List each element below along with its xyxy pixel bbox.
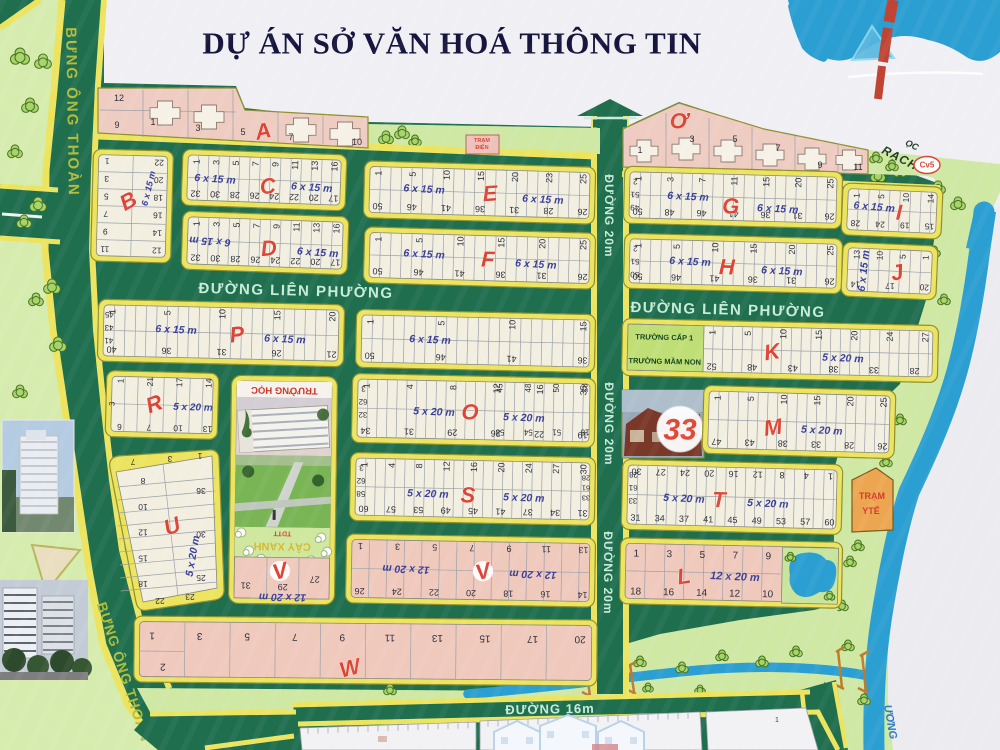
svg-text:4: 4 <box>804 471 809 481</box>
svg-text:20: 20 <box>327 311 337 321</box>
svg-text:50: 50 <box>365 350 375 360</box>
svg-text:11: 11 <box>291 222 301 232</box>
svg-text:62: 62 <box>358 397 368 406</box>
svg-text:26: 26 <box>249 191 259 201</box>
svg-text:41: 41 <box>441 203 451 213</box>
svg-text:3: 3 <box>107 401 116 406</box>
svg-text:G: G <box>722 193 740 218</box>
svg-text:1: 1 <box>637 145 642 155</box>
svg-text:49: 49 <box>752 515 762 525</box>
svg-text:30: 30 <box>210 253 220 263</box>
svg-text:31: 31 <box>509 205 519 215</box>
svg-text:5 x 20 m: 5 x 20 m <box>503 411 545 425</box>
svg-text:20: 20 <box>574 633 586 644</box>
svg-text:7: 7 <box>469 543 474 553</box>
svg-text:26: 26 <box>824 211 834 221</box>
svg-text:18: 18 <box>138 579 148 589</box>
svg-text:45: 45 <box>727 515 737 525</box>
svg-text:25: 25 <box>825 245 835 255</box>
svg-text:10: 10 <box>138 502 148 512</box>
svg-text:12 x 20 m: 12 x 20 m <box>710 570 760 584</box>
svg-text:61: 61 <box>628 483 638 492</box>
svg-text:49: 49 <box>630 203 640 212</box>
svg-text:ĐIỆN: ĐIỆN <box>475 143 488 151</box>
svg-text:14: 14 <box>696 588 708 599</box>
svg-text:1: 1 <box>707 330 717 335</box>
svg-text:15: 15 <box>479 632 491 643</box>
svg-text:34: 34 <box>360 426 370 436</box>
svg-text:8: 8 <box>414 463 424 468</box>
svg-text:6 x 15 m: 6 x 15 m <box>403 182 445 196</box>
svg-text:7: 7 <box>292 631 298 642</box>
svg-text:50: 50 <box>372 266 382 276</box>
svg-text:32: 32 <box>358 410 368 419</box>
svg-text:58: 58 <box>495 428 504 437</box>
svg-text:1: 1 <box>713 395 723 400</box>
svg-text:5: 5 <box>244 630 250 641</box>
svg-text:5: 5 <box>672 244 682 249</box>
svg-text:25: 25 <box>578 240 588 250</box>
svg-text:6 x 15 m: 6 x 15 m <box>403 247 445 261</box>
svg-text:10: 10 <box>442 170 452 180</box>
svg-text:51: 51 <box>630 190 640 199</box>
svg-text:45: 45 <box>104 310 114 319</box>
svg-text:26: 26 <box>250 255 260 265</box>
svg-text:41: 41 <box>506 354 516 364</box>
svg-text:2: 2 <box>632 244 637 253</box>
svg-text:33: 33 <box>663 414 697 447</box>
svg-text:5: 5 <box>162 310 172 315</box>
svg-text:13: 13 <box>202 424 212 434</box>
svg-text:62: 62 <box>356 476 366 485</box>
svg-text:10: 10 <box>173 423 183 433</box>
svg-text:5: 5 <box>699 550 705 561</box>
svg-text:28: 28 <box>543 206 553 216</box>
svg-text:9: 9 <box>339 631 345 642</box>
svg-text:45: 45 <box>496 383 505 392</box>
svg-text:21: 21 <box>145 377 155 387</box>
svg-text:57: 57 <box>800 517 810 527</box>
svg-text:5: 5 <box>231 160 241 165</box>
svg-text:46: 46 <box>407 202 417 212</box>
svg-text:10: 10 <box>778 329 788 339</box>
svg-text:32: 32 <box>190 252 200 262</box>
svg-text:50: 50 <box>372 201 382 211</box>
svg-text:31: 31 <box>241 580 251 590</box>
svg-text:3: 3 <box>104 174 109 184</box>
svg-text:3: 3 <box>689 134 694 144</box>
svg-text:26: 26 <box>577 272 587 282</box>
svg-text:37: 37 <box>679 514 689 524</box>
svg-text:YTẾ: YTẾ <box>862 506 880 516</box>
svg-text:50: 50 <box>630 270 640 279</box>
svg-text:DỰ ÁN SỞ VĂN HOÁ THÔNG TIN: DỰ ÁN SỞ VĂN HOÁ THÔNG TIN <box>202 26 701 61</box>
svg-text:9: 9 <box>270 162 280 167</box>
svg-text:11: 11 <box>384 632 395 643</box>
svg-text:5: 5 <box>232 222 242 227</box>
svg-text:22: 22 <box>429 587 439 597</box>
svg-text:21: 21 <box>326 349 336 359</box>
svg-text:23: 23 <box>185 592 195 602</box>
svg-text:T: T <box>712 487 728 512</box>
svg-text:4: 4 <box>405 384 415 389</box>
svg-text:20: 20 <box>309 193 319 203</box>
svg-text:18: 18 <box>581 383 590 392</box>
svg-text:5 x 20 m: 5 x 20 m <box>413 405 455 419</box>
svg-text:43: 43 <box>744 437 754 447</box>
svg-text:3: 3 <box>167 454 172 464</box>
svg-text:32: 32 <box>190 188 200 198</box>
svg-text:13: 13 <box>310 161 320 171</box>
svg-text:5: 5 <box>414 238 424 243</box>
svg-text:11: 11 <box>541 544 551 554</box>
svg-text:15: 15 <box>812 395 822 405</box>
svg-text:BƯNG ÔNG THOÀN: BƯNG ÔNG THOÀN <box>62 27 83 197</box>
svg-text:60: 60 <box>824 517 834 527</box>
svg-text:28: 28 <box>582 474 590 483</box>
svg-text:16: 16 <box>329 161 339 171</box>
svg-text:TRẠM: TRẠM <box>474 138 490 144</box>
svg-text:S: S <box>460 482 476 507</box>
svg-text:18: 18 <box>580 428 589 437</box>
svg-text:38: 38 <box>778 438 788 448</box>
svg-text:7: 7 <box>697 178 707 183</box>
svg-text:36: 36 <box>161 346 171 356</box>
svg-text:6 x 15 m: 6 x 15 m <box>669 255 711 269</box>
svg-text:10: 10 <box>352 137 362 147</box>
svg-text:15: 15 <box>748 243 758 253</box>
svg-text:57: 57 <box>386 504 396 514</box>
svg-text:26: 26 <box>877 441 887 451</box>
svg-text:33: 33 <box>582 494 590 503</box>
svg-text:7: 7 <box>775 143 780 153</box>
svg-text:36: 36 <box>748 274 758 284</box>
svg-text:54: 54 <box>523 428 532 437</box>
svg-text:Ơ: Ơ <box>670 109 691 134</box>
svg-text:8: 8 <box>448 385 458 390</box>
svg-text:5: 5 <box>103 191 108 201</box>
svg-text:4: 4 <box>387 463 397 468</box>
svg-text:ĐƯỜNG 20m: ĐƯỜNG 20m <box>602 382 617 465</box>
svg-text:6 x 15 m: 6 x 15 m <box>155 323 197 337</box>
svg-text:5 x 20 m: 5 x 20 m <box>173 402 213 414</box>
svg-text:20: 20 <box>466 588 476 598</box>
svg-text:12: 12 <box>138 528 148 538</box>
svg-text:20: 20 <box>537 239 547 249</box>
svg-text:25: 25 <box>196 573 206 583</box>
svg-text:46: 46 <box>436 352 446 362</box>
svg-text:51: 51 <box>630 257 640 266</box>
svg-text:O: O <box>461 399 479 424</box>
svg-text:6 x 15 m: 6 x 15 m <box>761 264 803 278</box>
svg-text:3: 3 <box>195 123 200 133</box>
svg-text:1: 1 <box>633 548 639 559</box>
svg-text:41: 41 <box>495 506 505 516</box>
svg-text:1: 1 <box>365 319 375 324</box>
svg-text:43: 43 <box>104 323 114 332</box>
svg-text:25: 25 <box>825 178 835 188</box>
svg-text:1: 1 <box>116 378 126 383</box>
svg-text:36: 36 <box>577 355 587 365</box>
svg-text:51: 51 <box>552 428 561 437</box>
svg-text:9: 9 <box>765 551 771 562</box>
svg-text:25: 25 <box>878 397 888 407</box>
svg-text:17: 17 <box>527 633 539 644</box>
svg-text:12 x 20 m: 12 x 20 m <box>382 562 430 576</box>
svg-text:41: 41 <box>454 268 464 278</box>
svg-text:1: 1 <box>775 717 779 724</box>
svg-text:28: 28 <box>850 218 860 228</box>
svg-text:24: 24 <box>885 331 895 341</box>
svg-text:33: 33 <box>628 496 638 505</box>
svg-text:41: 41 <box>104 336 114 345</box>
svg-text:6 x 15 m: 6 x 15 m <box>264 333 306 347</box>
svg-text:28: 28 <box>909 366 919 376</box>
svg-text:49: 49 <box>441 505 451 515</box>
svg-text:27: 27 <box>656 467 666 477</box>
svg-text:31: 31 <box>404 427 414 437</box>
svg-text:1: 1 <box>828 471 833 481</box>
svg-text:12: 12 <box>114 93 124 103</box>
svg-text:3: 3 <box>212 222 222 227</box>
svg-text:5: 5 <box>746 396 756 401</box>
svg-text:48: 48 <box>524 383 533 392</box>
svg-text:3: 3 <box>666 549 672 560</box>
svg-text:3: 3 <box>361 384 366 393</box>
svg-text:1: 1 <box>852 193 862 198</box>
svg-text:5 x 20 m: 5 x 20 m <box>503 491 545 505</box>
svg-text:14: 14 <box>203 378 213 388</box>
svg-text:46: 46 <box>671 272 681 282</box>
svg-text:11: 11 <box>100 244 109 254</box>
svg-text:48: 48 <box>747 362 757 372</box>
svg-text:15: 15 <box>924 221 934 231</box>
svg-text:26: 26 <box>355 586 365 596</box>
svg-text:31: 31 <box>630 513 640 523</box>
svg-text:1: 1 <box>104 156 109 166</box>
svg-text:47: 47 <box>711 437 721 447</box>
svg-text:25: 25 <box>578 174 588 184</box>
svg-text:5: 5 <box>743 331 753 336</box>
svg-text:3: 3 <box>395 542 400 552</box>
svg-text:24: 24 <box>680 468 690 478</box>
svg-text:1: 1 <box>150 117 155 127</box>
svg-text:26: 26 <box>824 276 834 286</box>
svg-text:58: 58 <box>356 489 366 498</box>
svg-text:27: 27 <box>551 464 561 474</box>
svg-text:12 x 20 m: 12 x 20 m <box>259 591 306 604</box>
svg-text:10: 10 <box>710 242 720 252</box>
svg-text:13: 13 <box>431 632 443 643</box>
svg-text:1: 1 <box>921 255 931 260</box>
svg-text:7: 7 <box>130 457 135 467</box>
svg-text:31: 31 <box>536 271 546 281</box>
svg-text:10: 10 <box>779 394 789 404</box>
svg-text:14: 14 <box>152 228 162 238</box>
svg-text:15: 15 <box>578 321 588 331</box>
svg-text:14: 14 <box>925 193 935 203</box>
svg-text:TRẠM: TRẠM <box>859 491 885 501</box>
svg-text:30: 30 <box>210 189 220 199</box>
svg-text:11: 11 <box>290 160 300 170</box>
svg-text:60: 60 <box>358 504 368 514</box>
svg-text:1: 1 <box>373 171 383 176</box>
svg-text:10: 10 <box>762 589 774 600</box>
svg-text:3: 3 <box>211 160 221 165</box>
svg-text:33: 33 <box>869 365 879 375</box>
svg-text:12: 12 <box>729 588 741 599</box>
svg-text:11: 11 <box>853 162 862 172</box>
svg-text:20: 20 <box>919 282 929 292</box>
svg-text:TRƯỜNG MẦM NON: TRƯỜNG MẦM NON <box>628 355 701 367</box>
svg-text:1: 1 <box>373 237 383 242</box>
svg-text:29: 29 <box>447 427 457 437</box>
svg-text:43: 43 <box>788 363 798 373</box>
svg-text:3: 3 <box>665 177 675 182</box>
svg-text:H: H <box>719 254 737 279</box>
svg-text:24: 24 <box>875 219 885 229</box>
svg-text:15: 15 <box>761 177 771 187</box>
svg-text:14: 14 <box>577 590 587 600</box>
svg-text:23: 23 <box>544 173 554 183</box>
svg-text:26: 26 <box>271 348 281 358</box>
svg-text:28: 28 <box>844 440 854 450</box>
svg-text:8: 8 <box>140 476 145 486</box>
svg-text:20: 20 <box>849 331 859 341</box>
svg-text:53: 53 <box>776 516 786 526</box>
svg-text:5 x 20 m: 5 x 20 m <box>407 487 449 501</box>
svg-text:7: 7 <box>252 223 262 228</box>
svg-text:6 x 15 m: 6 x 15 m <box>757 202 799 216</box>
svg-text:10: 10 <box>217 309 227 319</box>
svg-text:CÂY XANH: CÂY XANH <box>253 540 310 554</box>
svg-text:ĐƯỜNG 20m: ĐƯỜNG 20m <box>601 531 616 614</box>
svg-text:36: 36 <box>196 486 206 496</box>
svg-text:TRƯỜNG CẤP 1: TRƯỜNG CẤP 1 <box>635 331 693 342</box>
svg-text:20: 20 <box>510 172 520 182</box>
svg-text:22: 22 <box>154 158 164 168</box>
svg-text:10: 10 <box>507 320 517 330</box>
svg-text:28: 28 <box>230 190 240 200</box>
svg-text:52: 52 <box>707 361 717 371</box>
svg-text:E: E <box>482 180 499 206</box>
svg-text:16: 16 <box>728 469 738 479</box>
svg-text:8: 8 <box>779 470 784 480</box>
svg-text:1: 1 <box>197 451 202 461</box>
svg-text:1: 1 <box>192 221 202 226</box>
svg-text:6 x 15 m: 6 x 15 m <box>515 257 557 271</box>
svg-text:5: 5 <box>240 127 245 137</box>
svg-text:7: 7 <box>288 132 293 142</box>
svg-text:20: 20 <box>496 462 506 472</box>
svg-text:31: 31 <box>216 347 226 357</box>
svg-text:31: 31 <box>577 508 587 518</box>
svg-text:48: 48 <box>664 207 674 217</box>
svg-text:27: 27 <box>310 574 320 584</box>
svg-text:16: 16 <box>540 589 550 599</box>
svg-text:5 x 20 m: 5 x 20 m <box>822 351 864 365</box>
svg-text:18: 18 <box>503 589 513 599</box>
svg-text:26: 26 <box>577 207 587 217</box>
svg-text:7: 7 <box>251 161 261 166</box>
svg-text:12 x 20 m: 12 x 20 m <box>509 567 557 581</box>
svg-text:10: 10 <box>874 250 884 260</box>
svg-text:9: 9 <box>103 227 108 237</box>
svg-text:50: 50 <box>552 383 561 392</box>
svg-text:18: 18 <box>153 193 163 203</box>
svg-text:28: 28 <box>230 254 240 264</box>
svg-text:2: 2 <box>632 177 637 186</box>
svg-text:6 x 15 m: 6 x 15 m <box>409 333 451 347</box>
svg-text:38: 38 <box>828 364 838 374</box>
svg-text:3: 3 <box>359 463 364 472</box>
svg-text:9: 9 <box>114 120 119 130</box>
svg-text:17: 17 <box>174 377 184 387</box>
svg-text:5: 5 <box>432 542 437 552</box>
svg-text:6: 6 <box>117 422 122 432</box>
svg-text:12: 12 <box>753 470 763 480</box>
svg-text:12: 12 <box>441 461 451 471</box>
svg-text:46: 46 <box>413 267 423 277</box>
svg-text:16: 16 <box>153 210 163 220</box>
svg-text:7: 7 <box>732 551 738 562</box>
svg-text:13: 13 <box>311 223 321 233</box>
svg-text:41: 41 <box>703 514 713 524</box>
svg-text:30: 30 <box>578 464 588 474</box>
svg-text:1: 1 <box>192 159 202 164</box>
svg-text:15: 15 <box>496 237 506 247</box>
svg-text:9: 9 <box>817 160 822 170</box>
svg-text:7: 7 <box>146 423 151 433</box>
svg-text:D: D <box>260 235 278 261</box>
svg-text:9: 9 <box>506 544 511 554</box>
svg-text:22: 22 <box>289 192 299 202</box>
svg-text:5 x 20 m: 5 x 20 m <box>801 423 843 437</box>
svg-text:5: 5 <box>732 134 737 144</box>
svg-text:6 x 15 m: 6 x 15 m <box>667 190 709 204</box>
svg-text:12: 12 <box>152 246 162 256</box>
svg-text:16: 16 <box>663 587 675 598</box>
svg-text:5: 5 <box>436 321 446 326</box>
svg-text:ĐƯỜNG 20m: ĐƯỜNG 20m <box>602 174 617 257</box>
svg-text:5 x 20 m: 5 x 20 m <box>747 497 789 511</box>
svg-text:37: 37 <box>523 507 533 517</box>
svg-text:46: 46 <box>696 208 706 218</box>
svg-text:20: 20 <box>787 244 797 254</box>
svg-text:22: 22 <box>155 596 165 606</box>
svg-text:24: 24 <box>524 463 534 473</box>
svg-text:53: 53 <box>413 505 423 515</box>
svg-text:5 x 20 m: 5 x 20 m <box>663 492 705 506</box>
svg-text:18: 18 <box>630 586 642 597</box>
svg-text:34: 34 <box>550 508 560 518</box>
svg-text:10: 10 <box>455 236 465 246</box>
svg-text:TRƯỜNG HỌC: TRƯỜNG HỌC <box>251 384 318 397</box>
svg-text:1: 1 <box>358 541 363 551</box>
svg-text:34: 34 <box>655 513 665 523</box>
svg-text:5: 5 <box>876 194 886 199</box>
svg-text:11: 11 <box>729 176 739 186</box>
svg-text:15: 15 <box>138 553 148 563</box>
svg-text:36: 36 <box>495 269 505 279</box>
svg-text:27: 27 <box>920 332 930 342</box>
svg-text:F: F <box>481 247 496 272</box>
svg-text:22: 22 <box>534 429 544 439</box>
svg-text:2: 2 <box>160 661 166 672</box>
svg-text:5: 5 <box>408 171 418 176</box>
svg-text:1: 1 <box>149 630 155 641</box>
svg-text:9: 9 <box>272 224 282 229</box>
